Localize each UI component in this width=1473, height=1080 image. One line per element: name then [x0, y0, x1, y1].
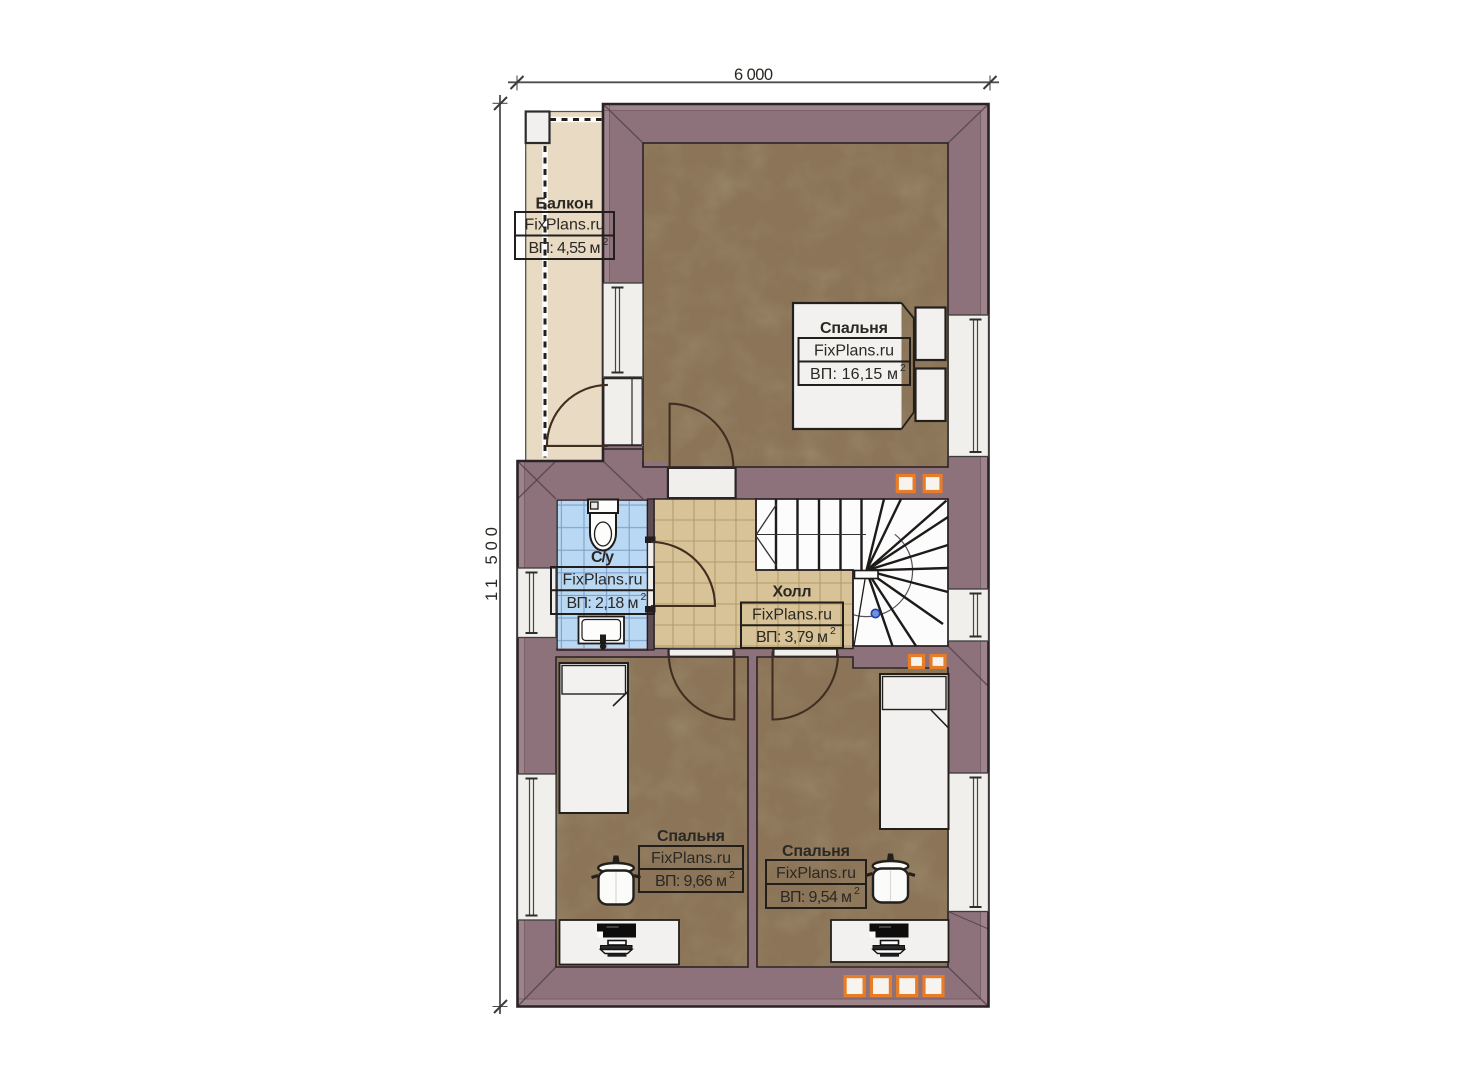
svg-text:2: 2: [641, 591, 647, 603]
svg-text:С/у: С/у: [591, 549, 614, 566]
svg-text:Спальня: Спальня: [782, 843, 850, 860]
svg-text:FixPlans.ru: FixPlans.ru: [752, 606, 832, 623]
svg-text:ВП: 9,66 м: ВП: 9,66 м: [655, 873, 727, 890]
svg-text:FixPlans.ru: FixPlans.ru: [563, 571, 643, 588]
svg-text:6 000: 6 000: [734, 66, 773, 84]
svg-text:ВП: 16,15 м: ВП: 16,15 м: [810, 366, 898, 383]
svg-text:ВП: 9,54 м: ВП: 9,54 м: [780, 889, 852, 906]
svg-text:2: 2: [854, 885, 860, 897]
svg-text:2: 2: [603, 236, 609, 248]
svg-text:FixPlans.ru: FixPlans.ru: [525, 217, 605, 234]
svg-text:2: 2: [729, 869, 735, 881]
svg-text:FixPlans.ru: FixPlans.ru: [814, 343, 894, 360]
svg-text:ВП: 4,55 м: ВП: 4,55 м: [529, 240, 601, 257]
svg-text:Холл: Холл: [773, 584, 812, 601]
svg-text:ВП: 3,79 м: ВП: 3,79 м: [756, 629, 828, 646]
svg-text:2: 2: [900, 362, 906, 374]
svg-text:Спальня: Спальня: [657, 828, 725, 845]
svg-text:ВП: 2,18 м: ВП: 2,18 м: [567, 595, 639, 612]
svg-text:FixPlans.ru: FixPlans.ru: [776, 865, 856, 882]
svg-text:2: 2: [830, 625, 836, 637]
svg-text:FixPlans.ru: FixPlans.ru: [651, 850, 731, 867]
svg-text:Балкон: Балкон: [536, 196, 594, 213]
svg-text:Спальня: Спальня: [820, 320, 888, 337]
